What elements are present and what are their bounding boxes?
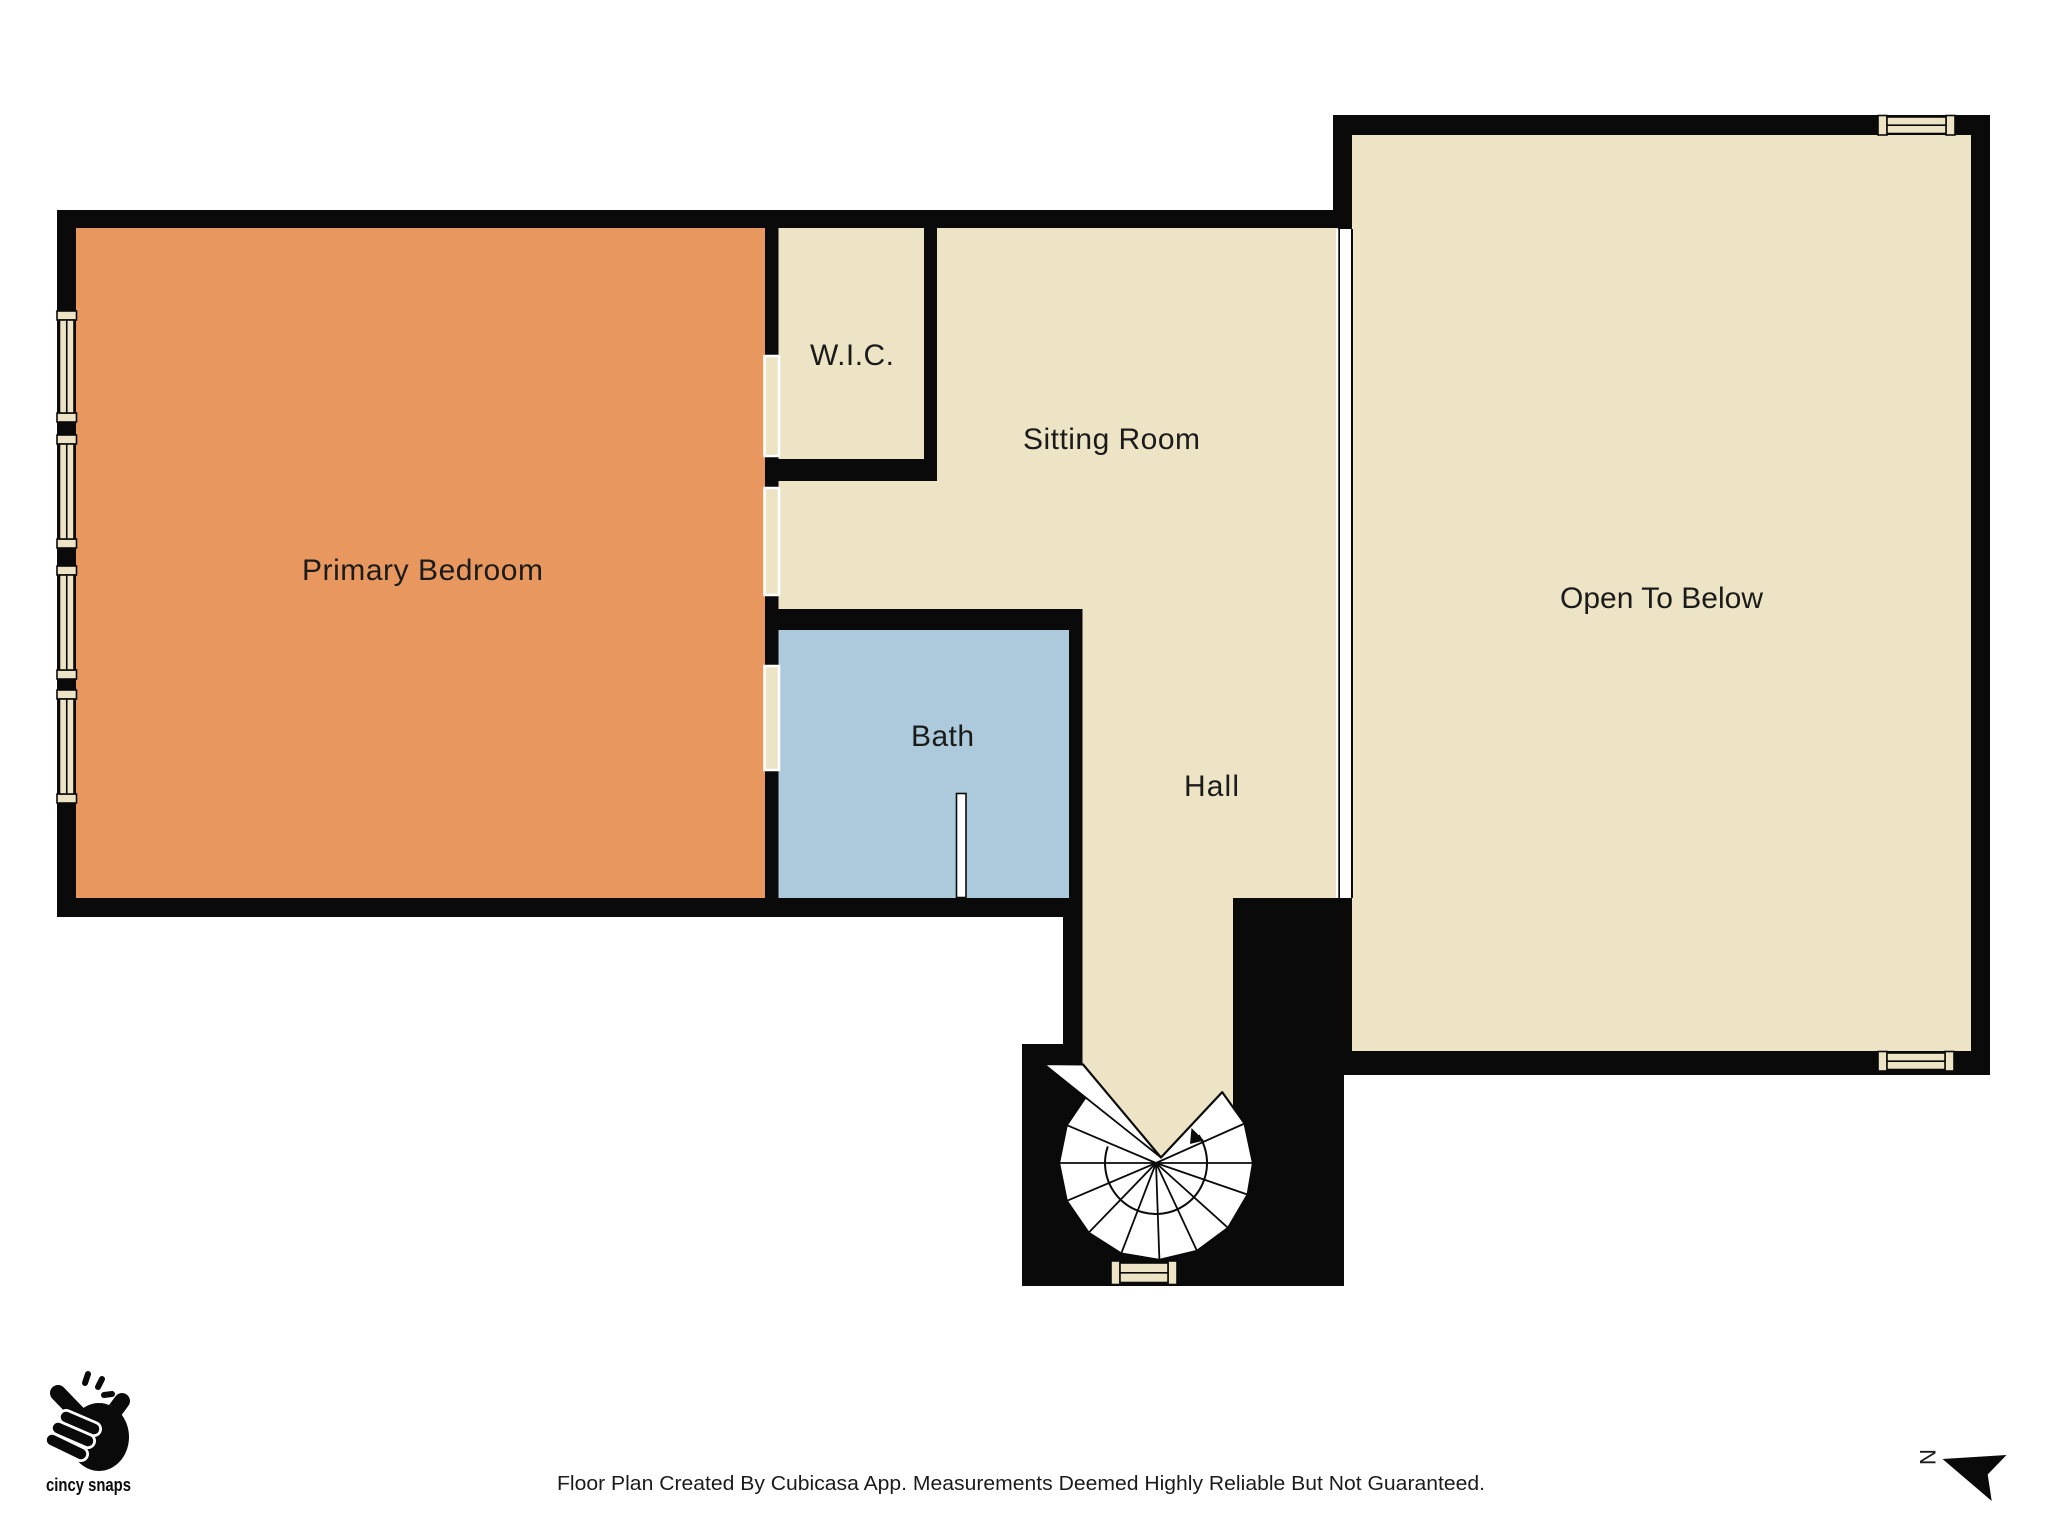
- svg-text:N: N: [1916, 1449, 1941, 1465]
- svg-text:Floor Plan Created By Cubicasa: Floor Plan Created By Cubicasa App. Meas…: [557, 1472, 1485, 1495]
- svg-text:Primary Bedroom: Primary Bedroom: [302, 554, 543, 587]
- svg-text:Hall: Hall: [1184, 770, 1239, 803]
- svg-text:cincy snaps: cincy snaps: [46, 1474, 131, 1495]
- svg-text:Bath: Bath: [911, 720, 974, 753]
- svg-text:Open To Below: Open To Below: [1560, 582, 1763, 615]
- svg-text:Sitting Room: Sitting Room: [1023, 423, 1200, 456]
- svg-text:W.I.C.: W.I.C.: [810, 339, 894, 372]
